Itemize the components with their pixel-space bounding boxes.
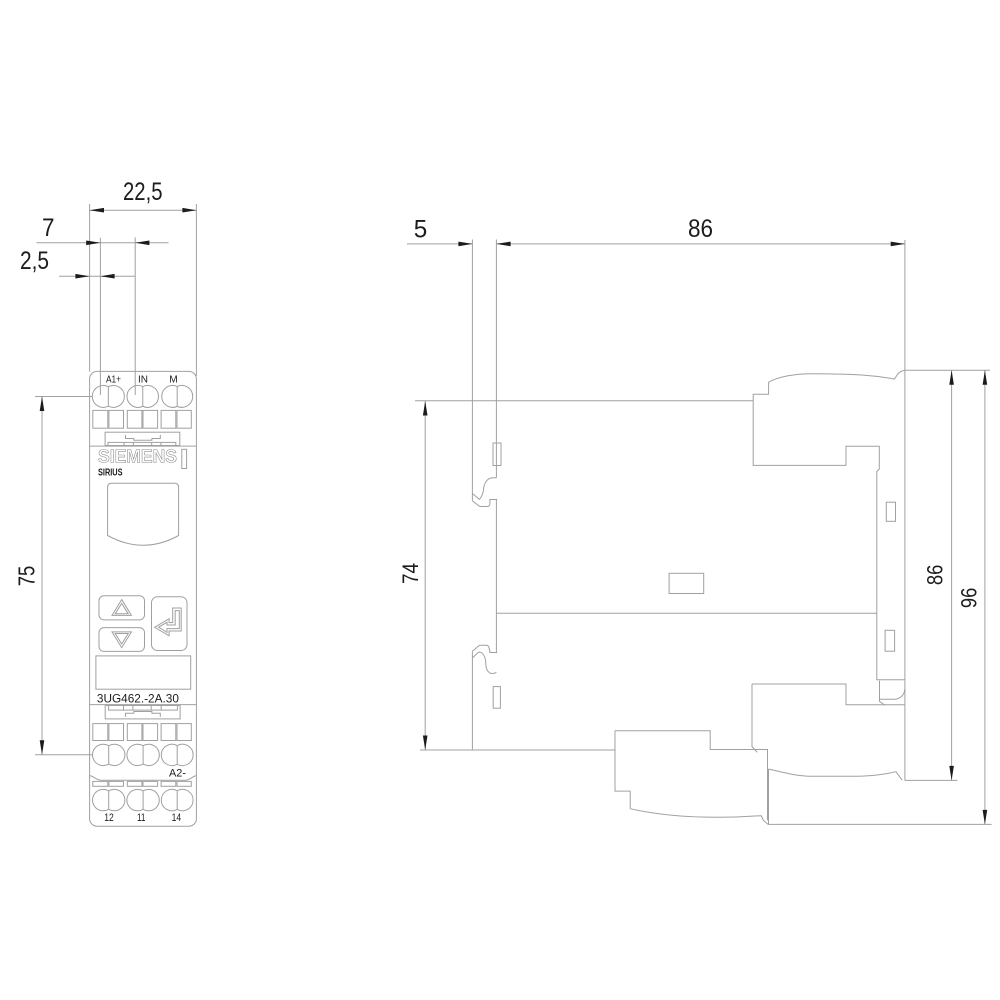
svg-text:2,5: 2,5 <box>20 247 49 275</box>
svg-text:5: 5 <box>414 216 428 244</box>
svg-text:12: 12 <box>104 812 114 824</box>
svg-text:SIRIUS: SIRIUS <box>98 468 123 479</box>
svg-text:75: 75 <box>13 566 39 587</box>
svg-text:86: 86 <box>923 565 948 586</box>
svg-text:14: 14 <box>172 812 182 824</box>
svg-text:96: 96 <box>957 588 982 609</box>
svg-text:74: 74 <box>398 563 423 584</box>
svg-text:86: 86 <box>688 215 713 243</box>
svg-text:11: 11 <box>137 812 146 824</box>
svg-text:IN: IN <box>138 374 148 386</box>
svg-text:3UG462.-2A.30: 3UG462.-2A.30 <box>97 692 179 706</box>
svg-text:A1+: A1+ <box>106 374 121 386</box>
svg-text:7: 7 <box>42 214 55 242</box>
svg-text:M: M <box>169 374 178 386</box>
svg-text:22,5: 22,5 <box>123 178 163 206</box>
svg-text:SIEMENS: SIEMENS <box>98 445 177 466</box>
svg-text:A2-: A2- <box>169 767 186 779</box>
